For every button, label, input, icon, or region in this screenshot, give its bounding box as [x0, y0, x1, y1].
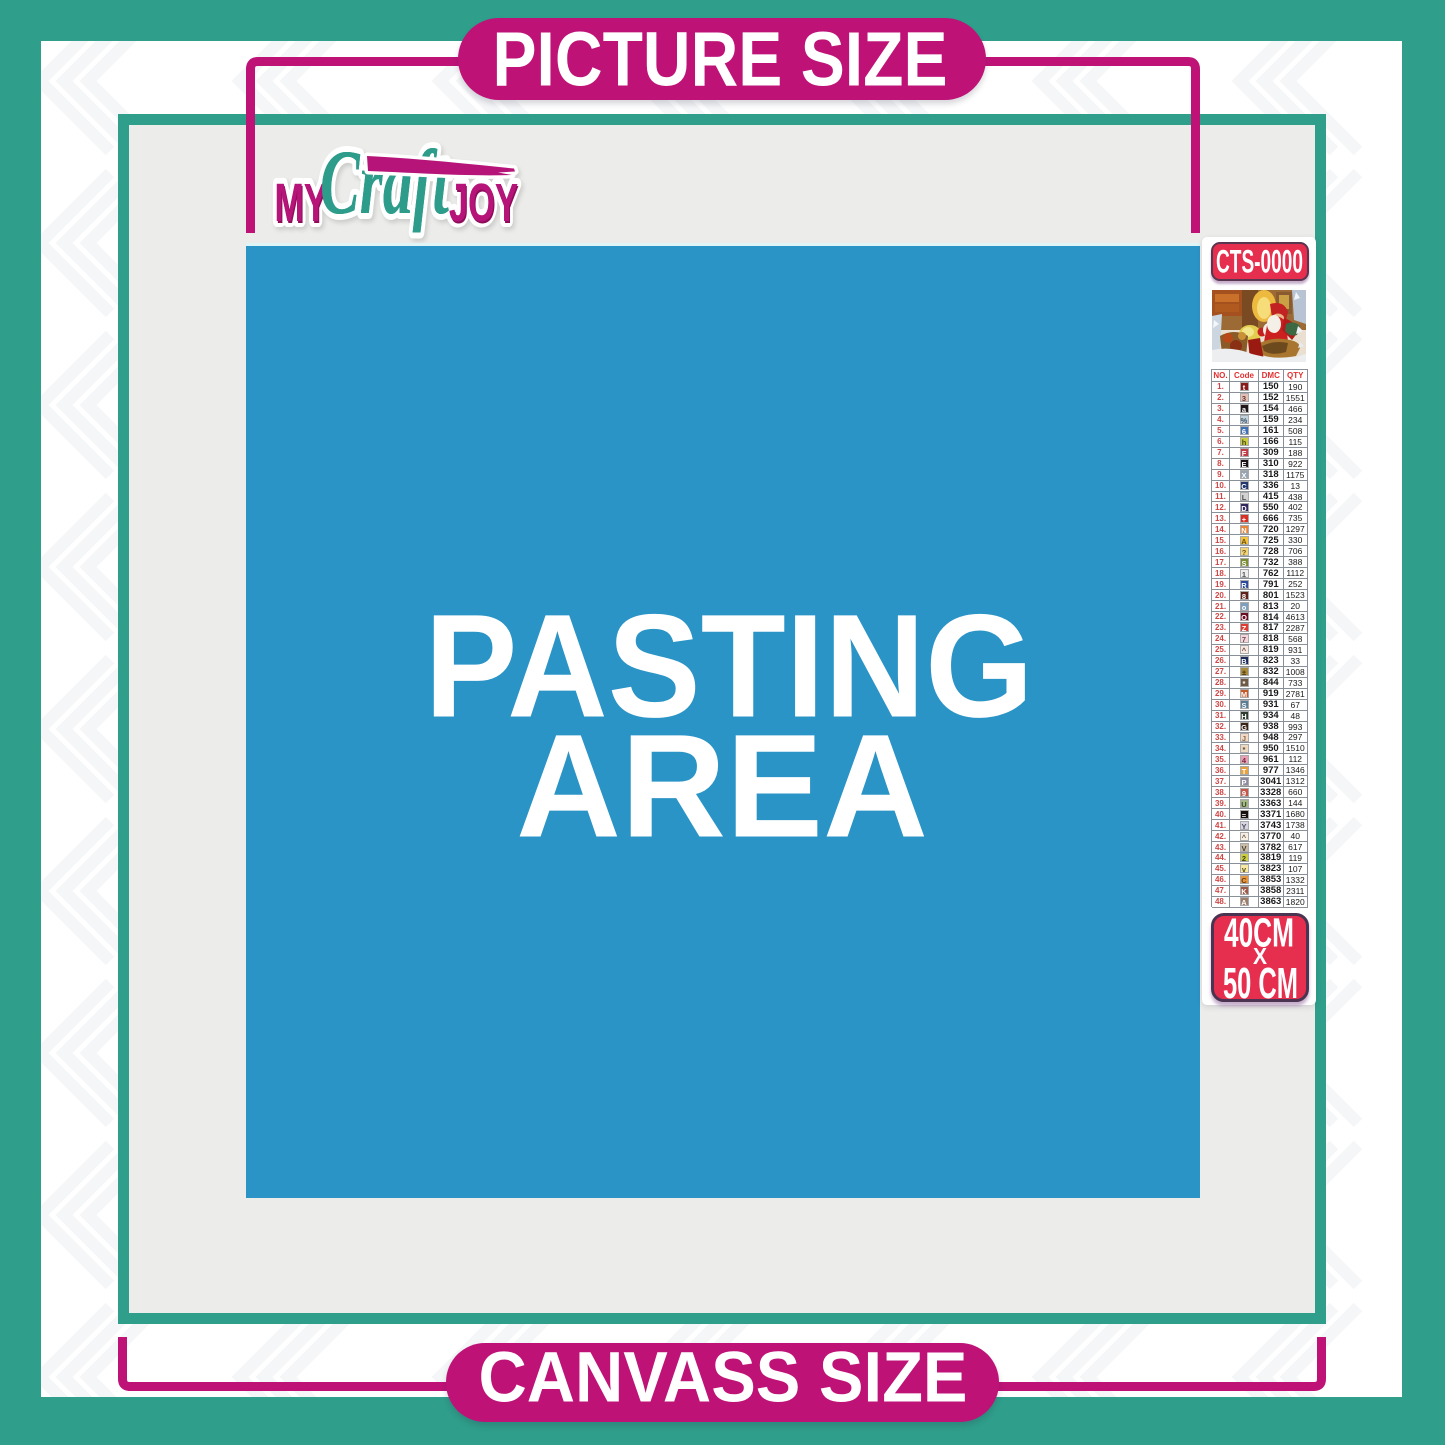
- svg-text:CTS-0000: CTS-0000: [1216, 243, 1303, 279]
- svg-text:Craft: Craft: [320, 131, 451, 233]
- svg-text:CANVASS SIZE: CANVASS SIZE: [479, 1343, 968, 1418]
- svg-text:AREA: AREA: [516, 705, 928, 869]
- svg-text:JOY: JOY: [449, 174, 518, 233]
- svg-text:50 CM: 50 CM: [1223, 959, 1298, 1002]
- svg-text:PICTURE SIZE: PICTURE SIZE: [493, 17, 948, 103]
